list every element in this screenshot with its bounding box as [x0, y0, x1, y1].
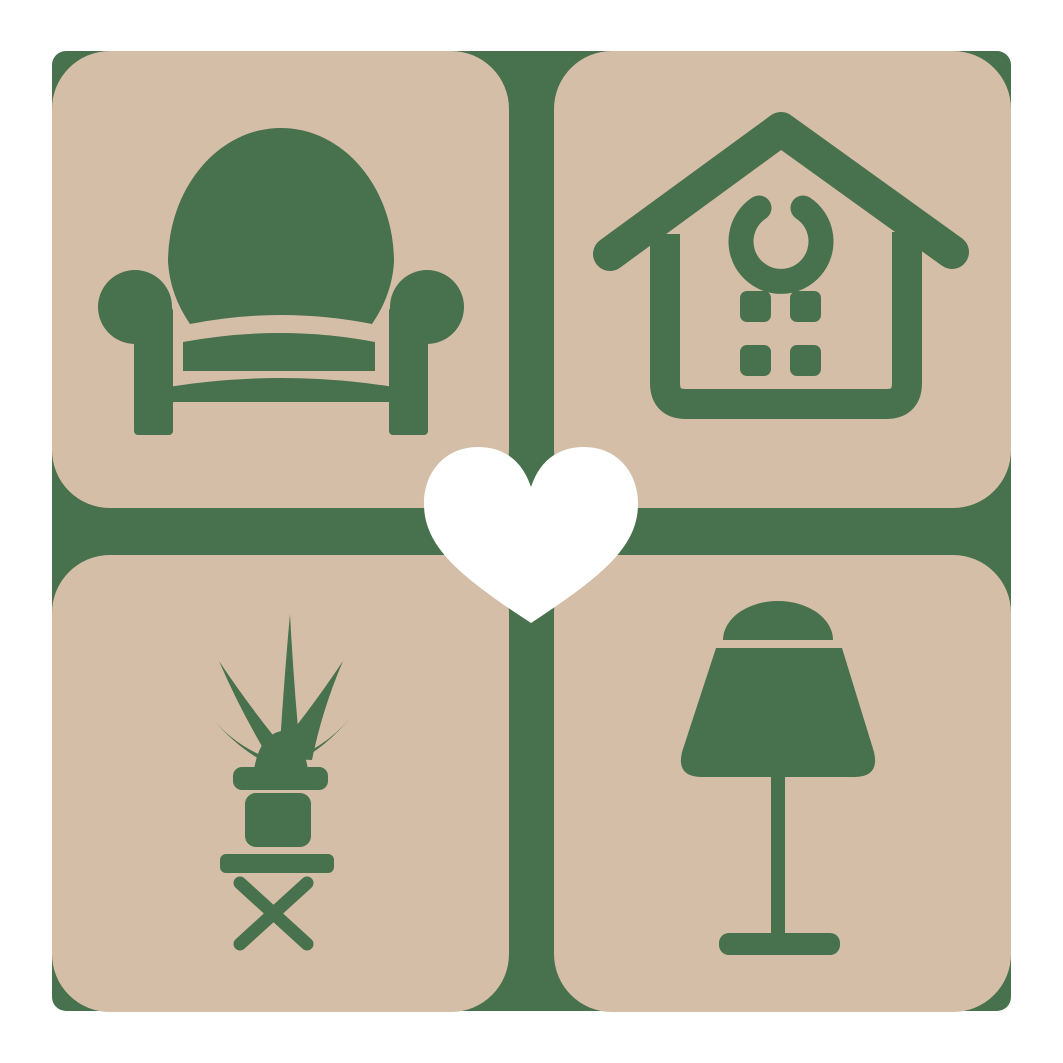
armchair-seat-cushion [183, 333, 375, 371]
lamp-shade [681, 648, 875, 777]
armchair-right-leg [389, 307, 428, 435]
house-window-pane [740, 345, 771, 376]
plant-pot-rim [233, 767, 328, 790]
house-window-pane [790, 291, 821, 322]
lamp-base [719, 933, 840, 955]
plant-pot-body [245, 793, 311, 847]
armchair-left-leg [134, 307, 173, 435]
logo-graphic [0, 0, 1063, 1063]
house-window-pane [740, 291, 771, 322]
lamp-stem [771, 777, 785, 937]
logo [0, 0, 1063, 1063]
plant-table-top [220, 854, 334, 873]
house-window-pane [790, 345, 821, 376]
